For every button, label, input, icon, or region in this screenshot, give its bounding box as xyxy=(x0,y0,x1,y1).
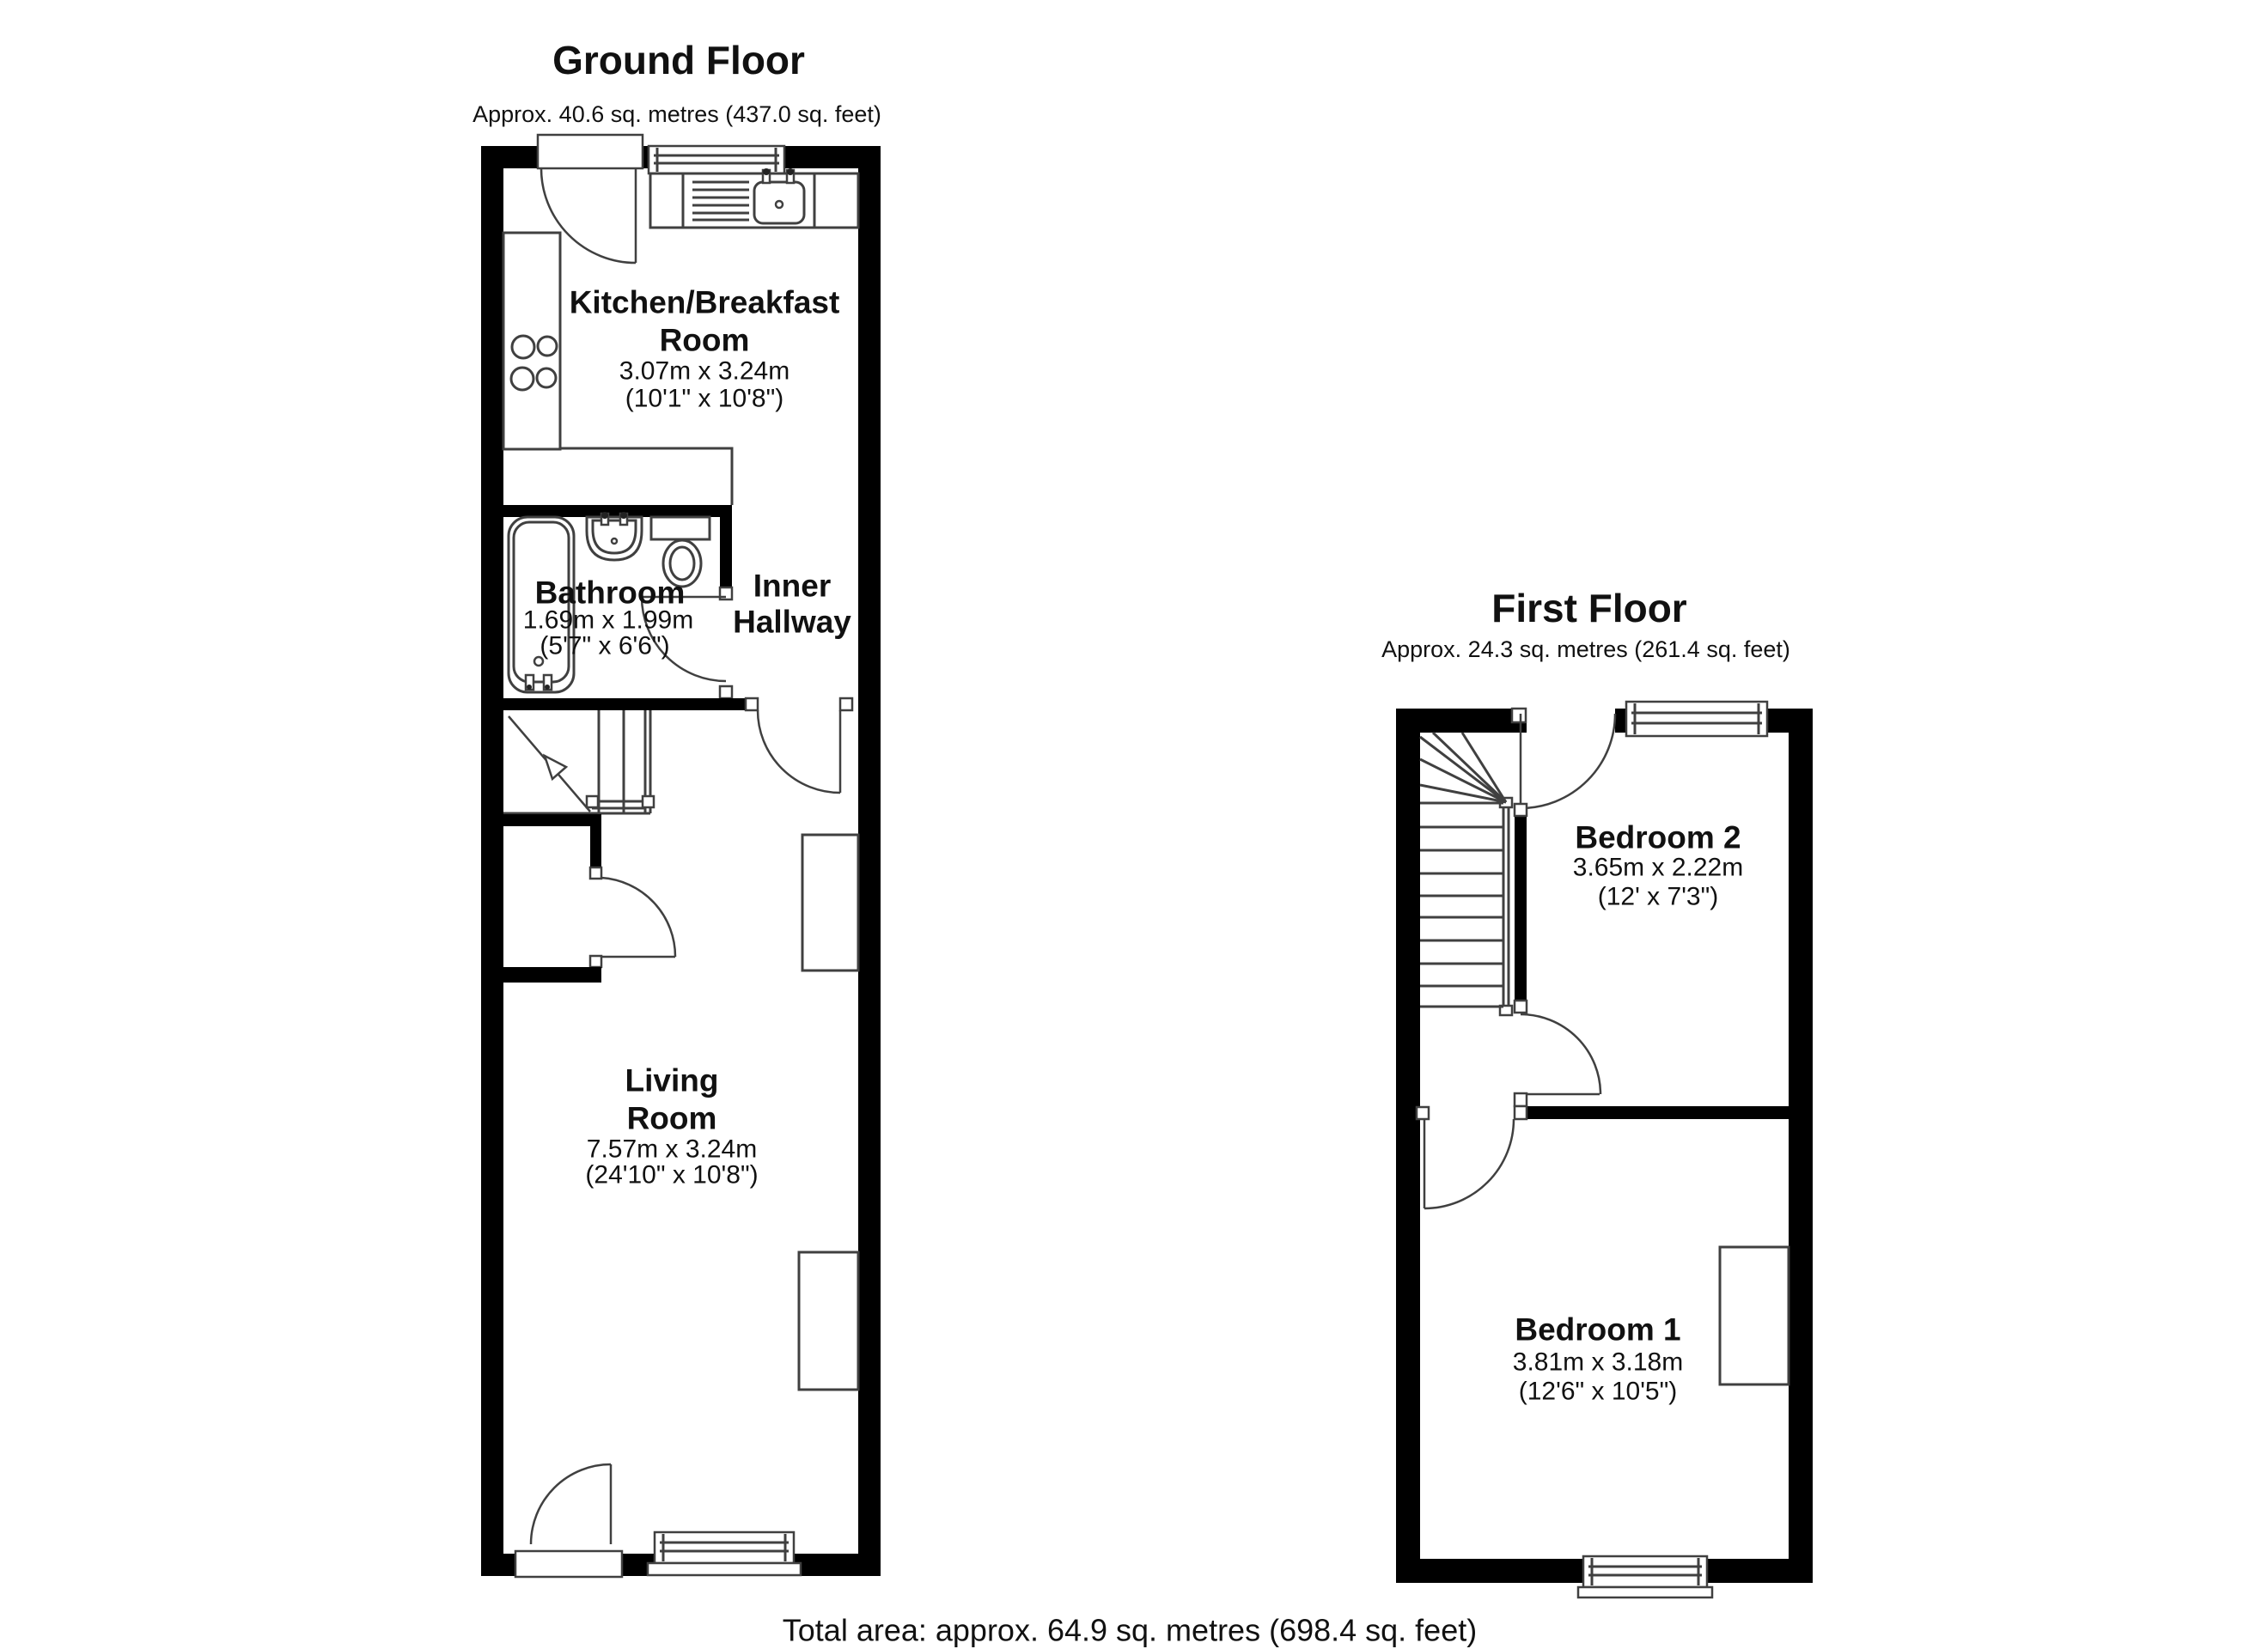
understairs-cupboard xyxy=(481,814,675,983)
bedroom2-dims-imperial: (12' x 7'3") xyxy=(1598,883,1719,911)
bedroom2-name: Bedroom 2 xyxy=(1575,820,1741,855)
staircase-ground xyxy=(503,710,654,813)
bedroom1-wall xyxy=(1527,1106,1789,1119)
bedroom2-window xyxy=(1626,702,1767,736)
floorplan-page: Ground Floor Approx. 40.6 sq. metres (43… xyxy=(0,0,2268,1649)
bedroom2-door xyxy=(1512,707,1615,808)
ground-floor-subtitle: Approx. 40.6 sq. metres (437.0 sq. feet) xyxy=(472,101,881,127)
bathroom-label: Bathroom 1.69m x 1.99m (5'7" x 6'6") xyxy=(523,575,693,660)
kitchen-dims-imperial: (10'1" x 10'8") xyxy=(625,385,784,413)
hallway-name-line1: Inner xyxy=(753,569,831,604)
door-jamb xyxy=(1417,1107,1429,1119)
door-jamb xyxy=(1515,1106,1527,1119)
ff-wall-right xyxy=(1789,709,1813,1583)
gf-wall-right xyxy=(858,146,881,1576)
bedroom1-dims-metric: 3.81m x 3.18m xyxy=(1513,1348,1683,1377)
stairs-arrowhead xyxy=(545,756,566,779)
ground-floor-title: Ground Floor xyxy=(552,38,805,82)
living-room-window xyxy=(648,1532,801,1575)
living-dims-metric: 7.57m x 3.24m xyxy=(587,1135,757,1164)
bedroom1-dims-imperial: (12'6" x 10'5") xyxy=(1519,1378,1678,1406)
bathroom-dims-metric: 1.69m x 1.99m xyxy=(523,606,693,635)
wardrobe-rect xyxy=(1720,1247,1789,1384)
kitchen-name-line2: Room xyxy=(660,323,750,358)
kitchen-name-line1: Kitchen/Breakfast xyxy=(570,285,840,320)
bathroom-wall-stub xyxy=(720,517,732,587)
stair-partition-wall xyxy=(1515,816,1527,1001)
ground-floor-plan: Ground Floor Approx. 40.6 sq. metres (43… xyxy=(472,38,881,1577)
bedroom2-label: Bedroom 2 3.65m x 2.22m (12' x 7'3") xyxy=(1573,820,1743,911)
living-room-label: Living Room 7.57m x 3.24m (24'10" x 10'8… xyxy=(585,1063,758,1190)
kitchen-dims-metric: 3.07m x 3.24m xyxy=(619,357,790,386)
fixture-rect-upper xyxy=(802,835,858,971)
fixture-rect-lower xyxy=(799,1252,858,1390)
ff-wall-left xyxy=(1396,709,1420,1583)
front-door xyxy=(515,1464,622,1577)
first-floor-plan: First Floor Approx. 24.3 sq. metres (261… xyxy=(1381,586,1813,1597)
kitchen-label: Kitchen/Breakfast Room 3.07m x 3.24m (10… xyxy=(570,285,840,413)
floorplan-drawing: Ground Floor Approx. 40.6 sq. metres (43… xyxy=(0,0,2268,1649)
door-jamb xyxy=(1515,804,1527,816)
first-floor-subtitle: Approx. 24.3 sq. metres (261.4 sq. feet) xyxy=(1381,636,1790,662)
living-name-line1: Living xyxy=(625,1063,719,1098)
living-name-line2: Room xyxy=(627,1101,717,1136)
hallway-name-line2: Hallway xyxy=(733,605,851,640)
basin-icon xyxy=(587,512,642,560)
inner-hallway-label: Inner Hallway xyxy=(733,569,851,640)
bedroom1-door xyxy=(1424,1119,1514,1208)
landing-bedroom2-door xyxy=(1515,1014,1600,1106)
living-dims-imperial: (24'10" x 10'8") xyxy=(585,1161,758,1190)
kitchen-sink-icon xyxy=(650,168,858,228)
door-jamb xyxy=(1515,1001,1527,1013)
staircase-first-floor xyxy=(1420,733,1512,1015)
door-jamb xyxy=(720,686,732,698)
bedroom2-dims-metric: 3.65m x 2.22m xyxy=(1573,854,1743,882)
bedroom1-label: Bedroom 1 3.81m x 3.18m (12'6" x 10'5") xyxy=(1513,1312,1683,1406)
gf-wall-left xyxy=(481,146,503,1576)
hob-icon xyxy=(503,233,560,449)
kitchen-boundary-line xyxy=(560,448,732,505)
bathroom-name: Bathroom xyxy=(535,575,686,611)
door-jamb xyxy=(840,698,852,710)
door-jamb xyxy=(746,698,758,710)
first-floor-title: First Floor xyxy=(1491,586,1687,630)
bedroom1-name: Bedroom 1 xyxy=(1515,1312,1680,1348)
bedroom1-window xyxy=(1578,1556,1712,1597)
hallway-wall xyxy=(481,698,747,710)
bathroom-dims-imperial: (5'7" x 6'6") xyxy=(540,632,669,660)
hallway-door xyxy=(758,710,840,793)
total-area-text: Total area: approx. 64.9 sq. metres (698… xyxy=(783,1613,1477,1648)
